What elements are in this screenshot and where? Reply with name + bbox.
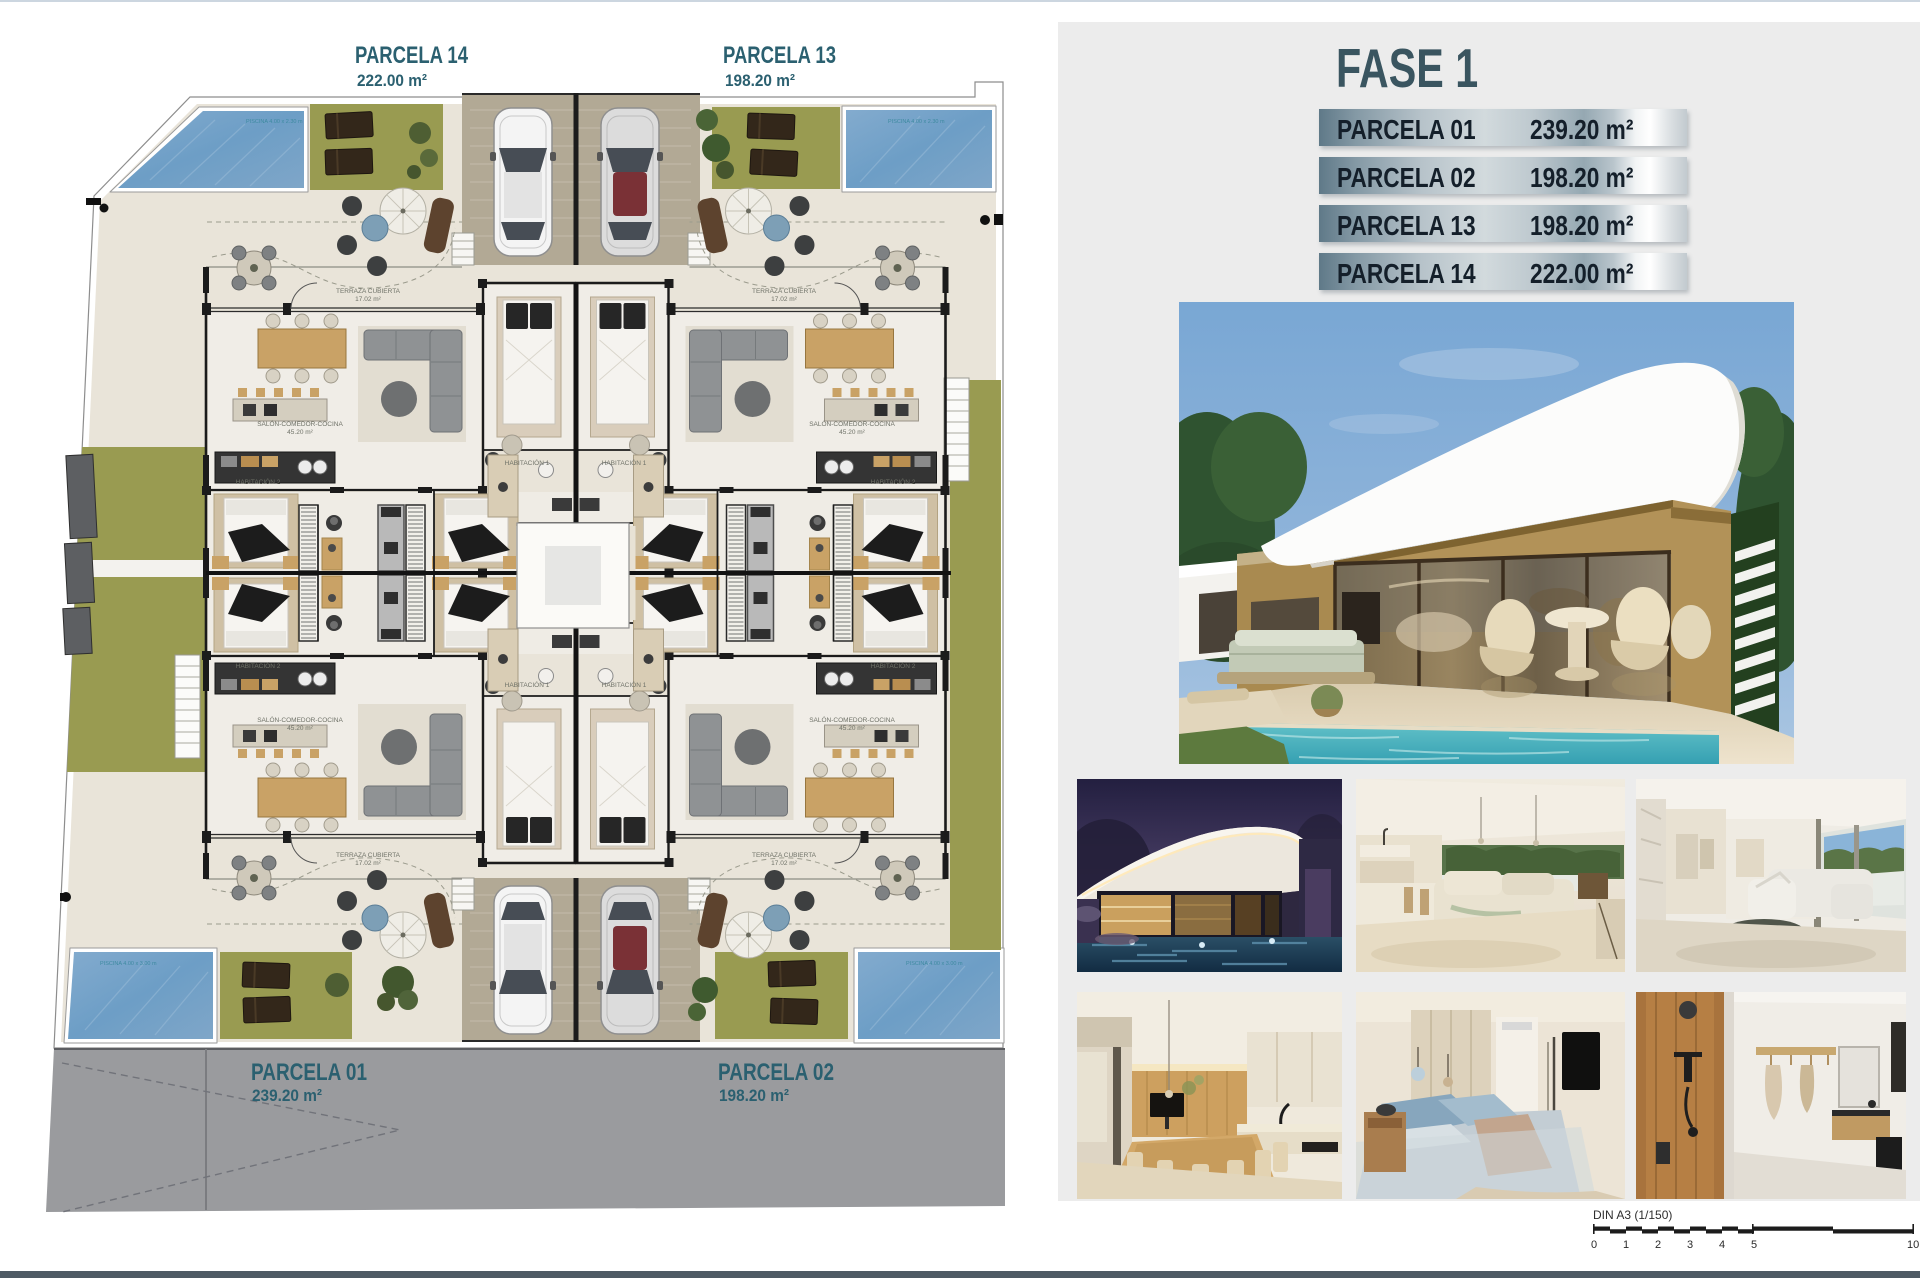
svg-text:PARCELA 02: PARCELA 02 xyxy=(718,1059,834,1086)
svg-text:SALÓN-COMEDOR-COCINA: SALÓN-COMEDOR-COCINA xyxy=(257,715,343,724)
svg-text:TERRAZA CUBIERTA: TERRAZA CUBIERTA xyxy=(752,852,817,859)
svg-text:198.20 m²: 198.20 m² xyxy=(725,71,795,90)
svg-text:1: 1 xyxy=(1623,1239,1629,1251)
svg-text:45.20 m²: 45.20 m² xyxy=(287,725,313,732)
svg-text:17.02 m²: 17.02 m² xyxy=(771,860,797,867)
svg-text:TERRAZA CUBIERTA: TERRAZA CUBIERTA xyxy=(752,288,817,295)
svg-text:PISCINA 4.00 x 2.30 m: PISCINA 4.00 x 2.30 m xyxy=(246,119,303,125)
svg-text:HABITACIÓN 2: HABITACIÓN 2 xyxy=(871,661,916,670)
svg-text:HABITACIÓN 2: HABITACIÓN 2 xyxy=(236,477,281,486)
svg-text:3: 3 xyxy=(1687,1239,1693,1251)
svg-text:222.00 m²: 222.00 m² xyxy=(357,71,427,90)
svg-text:SALÓN-COMEDOR-COCINA: SALÓN-COMEDOR-COCINA xyxy=(809,715,895,724)
svg-text:239.20 m²: 239.20 m² xyxy=(252,1086,322,1105)
svg-text:HABITACIÓN 1: HABITACIÓN 1 xyxy=(602,458,647,467)
svg-text:PARCELA 13: PARCELA 13 xyxy=(723,42,836,69)
svg-text:17.02 m²: 17.02 m² xyxy=(771,296,797,303)
svg-text:17.02 m²: 17.02 m² xyxy=(355,296,381,303)
svg-text:198.20 m²: 198.20 m² xyxy=(719,1086,789,1105)
svg-text:17.02 m²: 17.02 m² xyxy=(355,860,381,867)
svg-text:HABITACIÓN 2: HABITACIÓN 2 xyxy=(871,477,916,486)
svg-text:SALÓN-COMEDOR-COCINA: SALÓN-COMEDOR-COCINA xyxy=(257,419,343,428)
svg-text:45.20 m²: 45.20 m² xyxy=(839,429,865,436)
svg-text:2: 2 xyxy=(1655,1239,1661,1251)
svg-text:0: 0 xyxy=(1591,1239,1597,1251)
svg-text:HABITACIÓN 2: HABITACIÓN 2 xyxy=(236,661,281,670)
svg-text:HABITACIÓN 1: HABITACIÓN 1 xyxy=(505,680,550,689)
svg-text:HABITACIÓN 1: HABITACIÓN 1 xyxy=(505,458,550,467)
svg-text:4: 4 xyxy=(1719,1239,1725,1251)
svg-text:PISCINA 4.00 x 3.00 m: PISCINA 4.00 x 3.00 m xyxy=(906,961,963,967)
svg-text:5: 5 xyxy=(1751,1239,1757,1251)
svg-text:SALÓN-COMEDOR-COCINA: SALÓN-COMEDOR-COCINA xyxy=(809,419,895,428)
svg-text:HABITACIÓN 1: HABITACIÓN 1 xyxy=(602,680,647,689)
svg-text:PISCINA 4.00 x 3.00 m: PISCINA 4.00 x 3.00 m xyxy=(100,961,157,967)
svg-text:PARCELA 01: PARCELA 01 xyxy=(251,1059,367,1086)
svg-text:TERRAZA CUBIERTA: TERRAZA CUBIERTA xyxy=(336,852,401,859)
svg-text:TERRAZA CUBIERTA: TERRAZA CUBIERTA xyxy=(336,288,401,295)
svg-text:PISCINA 4.00 x 2.30 m: PISCINA 4.00 x 2.30 m xyxy=(888,119,945,125)
svg-text:45.20 m²: 45.20 m² xyxy=(839,725,865,732)
svg-text:PARCELA 14: PARCELA 14 xyxy=(355,42,468,69)
svg-text:10: 10 xyxy=(1907,1239,1919,1251)
svg-text:45.20 m²: 45.20 m² xyxy=(287,429,313,436)
